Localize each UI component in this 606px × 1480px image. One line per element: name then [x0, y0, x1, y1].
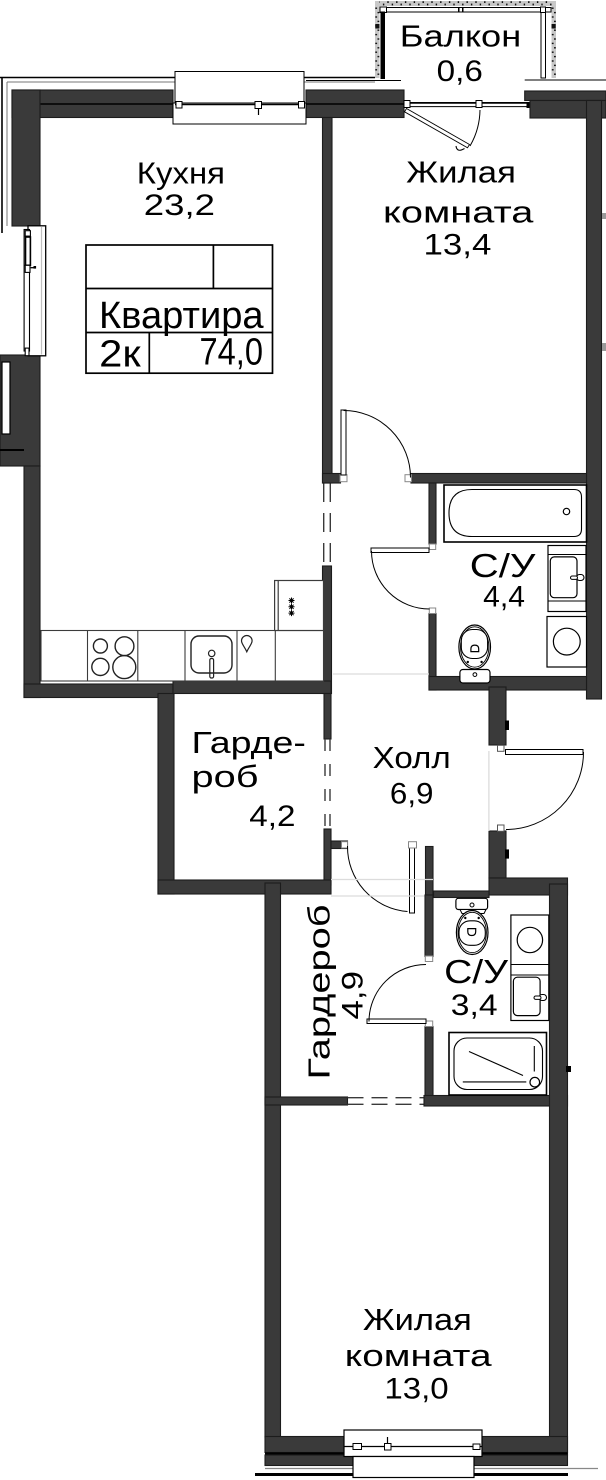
svg-text:Кухня: Кухня [137, 156, 225, 191]
svg-text:3,4: 3,4 [451, 989, 498, 1022]
svg-text:Холл: Холл [373, 740, 451, 775]
svg-text:4,2: 4,2 [249, 800, 295, 833]
svg-text:4,4: 4,4 [483, 581, 525, 614]
svg-text:комната: комната [383, 195, 534, 230]
svg-text:23,2: 23,2 [144, 189, 215, 222]
svg-text:6,9: 6,9 [390, 778, 434, 811]
svg-text:роб: роб [192, 759, 259, 794]
svg-text:74,0: 74,0 [200, 332, 264, 374]
svg-text:Гардероб: Гардероб [302, 905, 337, 1080]
svg-text:С/У: С/У [444, 953, 509, 990]
svg-text:Балкон: Балкон [400, 19, 521, 54]
svg-text:Гарде-: Гарде- [192, 725, 306, 760]
svg-text:0,6: 0,6 [437, 55, 483, 88]
svg-text:Жилая: Жилая [363, 1302, 472, 1337]
svg-text:4,9: 4,9 [336, 971, 369, 1020]
svg-text:комната: комната [345, 1338, 493, 1373]
svg-text:13,0: 13,0 [384, 1373, 448, 1406]
svg-text:13,4: 13,4 [424, 229, 492, 262]
svg-text:Квартира: Квартира [99, 295, 264, 337]
svg-text:2к: 2к [99, 334, 141, 376]
svg-text:Жилая: Жилая [406, 155, 516, 190]
svg-text:С/У: С/У [470, 547, 537, 584]
